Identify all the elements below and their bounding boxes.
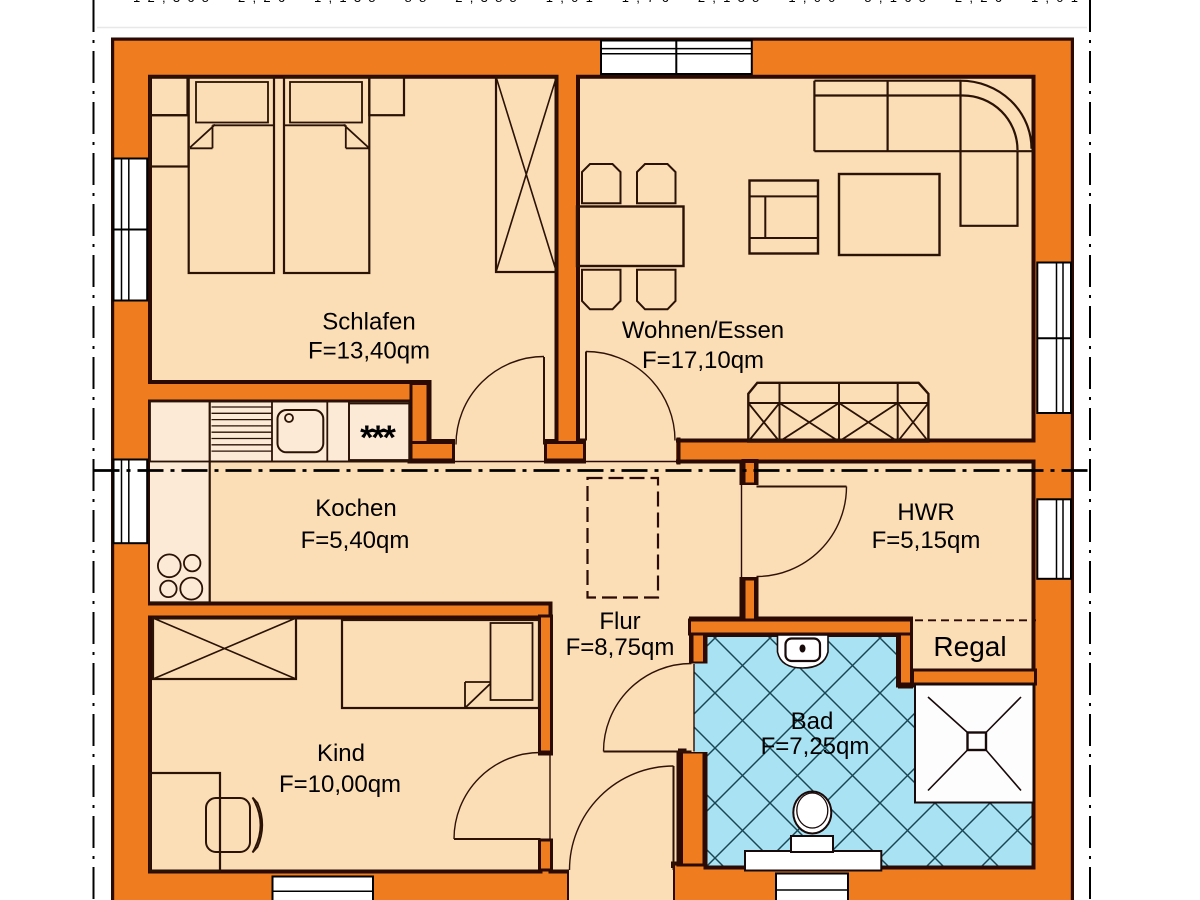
- svg-text:HWR: HWR: [897, 499, 954, 526]
- svg-text:Kochen: Kochen: [315, 495, 396, 522]
- svg-text:Flur: Flur: [599, 608, 640, 635]
- svg-text:Wohnen/Essen: Wohnen/Essen: [622, 317, 784, 344]
- svg-text:F=5,40qm: F=5,40qm: [301, 527, 410, 554]
- svg-text:F=13,40qm: F=13,40qm: [308, 338, 430, 365]
- svg-text:***: ***: [360, 419, 396, 457]
- svg-text:Kind: Kind: [317, 740, 365, 767]
- svg-text:F=7,25qm: F=7,25qm: [761, 733, 870, 760]
- svg-text:F=10,00qm: F=10,00qm: [279, 771, 401, 798]
- svg-text:Schlafen: Schlafen: [322, 309, 415, 336]
- svg-text:F=8,75qm: F=8,75qm: [566, 634, 675, 661]
- svg-text:Bad: Bad: [791, 708, 834, 735]
- svg-text:F=17,10qm: F=17,10qm: [642, 347, 764, 374]
- svg-text:Regal: Regal: [933, 631, 1006, 662]
- svg-text:F=5,15qm: F=5,15qm: [872, 527, 981, 554]
